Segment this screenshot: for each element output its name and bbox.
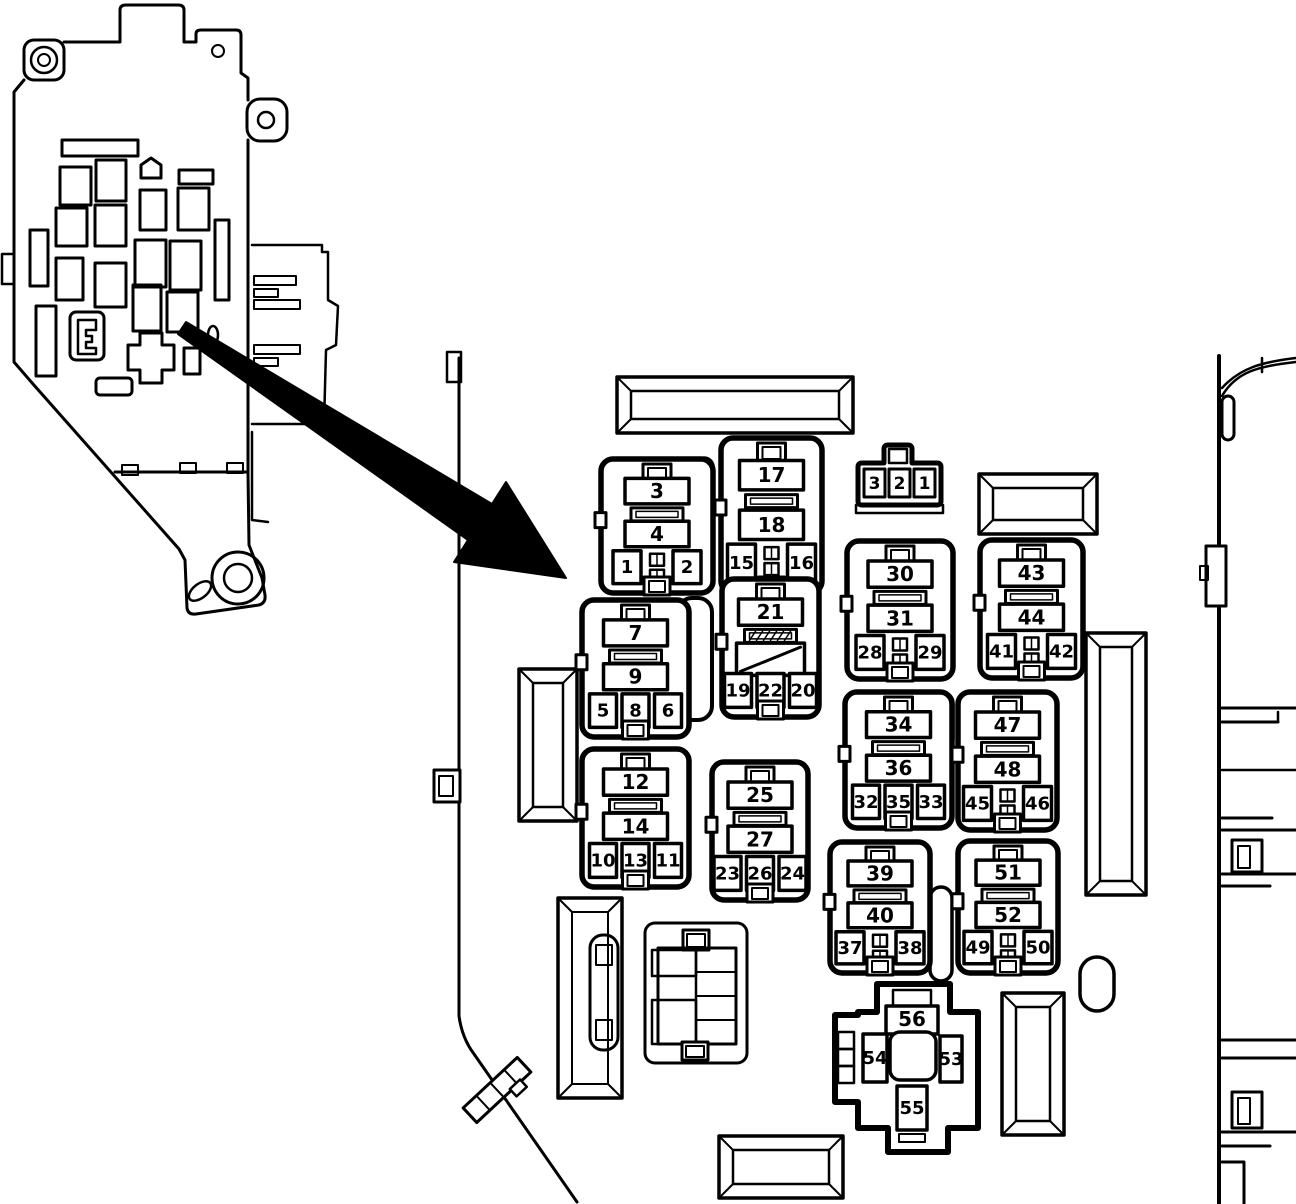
position-number: 9 <box>629 665 643 689</box>
side-notch <box>716 634 727 649</box>
position-number: 25 <box>746 783 774 807</box>
callout-arrow <box>178 322 566 578</box>
position-number: 29 <box>917 642 942 663</box>
relay-socket-block-34-36: 3436323533 <box>839 692 952 830</box>
side-notch <box>576 804 587 819</box>
bevel-slot <box>519 669 577 821</box>
relay-socket-block-12-14: 1214101311 <box>576 749 689 889</box>
position-number: 44 <box>1018 605 1046 629</box>
position-number: 52 <box>994 903 1022 927</box>
side-notch <box>595 513 606 528</box>
relay-socket-block-51-52: 51524950 <box>952 841 1058 975</box>
keyed-slot <box>463 1057 536 1128</box>
position-number: 46 <box>1025 793 1050 814</box>
position-number: 32 <box>853 792 878 813</box>
position-number: 19 <box>725 680 750 701</box>
position-number: 4 <box>650 522 664 546</box>
position-number: 37 <box>837 938 862 959</box>
position-number: 38 <box>897 938 922 959</box>
overview-fusebox-drawing <box>2 5 338 614</box>
position-number: 53 <box>938 1049 963 1070</box>
side-notch <box>974 595 985 610</box>
left-slot-connector <box>558 898 622 1098</box>
relay-socket-block-7-9: 79586 <box>576 600 689 739</box>
position-number: 8 <box>629 701 642 722</box>
overview-pentagon-slot <box>141 158 161 178</box>
position-number: 16 <box>789 553 814 574</box>
panel-right-edge <box>1200 356 1296 1204</box>
three-pin-connector: 321 <box>856 445 943 513</box>
fuse-element <box>982 889 1034 902</box>
position-number: 50 <box>1025 938 1050 959</box>
position-number: 2 <box>681 557 694 578</box>
position-number: 55 <box>899 1098 924 1119</box>
position-number: 18 <box>758 513 786 537</box>
position-number: 47 <box>994 713 1022 737</box>
position-number: 3 <box>869 474 881 494</box>
fuse-element <box>854 890 906 903</box>
side-notch <box>841 596 852 611</box>
fuse-element <box>610 650 662 663</box>
position-number: 33 <box>918 792 943 813</box>
position-number: 31 <box>886 606 914 630</box>
position-number: 7 <box>629 621 643 645</box>
position-number: 1 <box>919 474 931 494</box>
position-number: 54 <box>862 1048 887 1069</box>
position-number: 45 <box>965 793 990 814</box>
position-number: 41 <box>989 641 1014 662</box>
position-number: 42 <box>1049 641 1074 662</box>
position-number: 3 <box>650 479 664 503</box>
relay-socket-block-43-44: 43444142 <box>974 540 1083 680</box>
position-number: 39 <box>866 861 894 885</box>
bevel-slot <box>1086 633 1146 895</box>
side-notch <box>952 894 963 909</box>
position-number: 35 <box>886 792 911 813</box>
relay-socket-block-25-27: 2527232624 <box>706 762 808 902</box>
position-number: 30 <box>886 562 914 586</box>
position-number: 21 <box>757 600 785 624</box>
fuse-element <box>746 495 798 508</box>
position-number: 51 <box>994 861 1022 885</box>
side-notch <box>706 817 717 832</box>
relay-socket-block-39-40: 39403738 <box>824 842 930 975</box>
cross-relay-block: 56545355 <box>835 984 978 1152</box>
side-notch <box>952 747 963 762</box>
relay-socket-block-17-18: 17181516 <box>715 438 822 595</box>
mount-hole <box>212 552 264 604</box>
position-number: 5 <box>597 701 610 722</box>
side-notch <box>824 894 835 909</box>
position-number: 27 <box>746 827 774 851</box>
fuse-element <box>873 742 925 755</box>
position-number: 1 <box>621 557 634 578</box>
fuse-element <box>982 742 1034 755</box>
bevel-slot <box>979 474 1097 534</box>
relay-socket-block-3-4: 3412 <box>595 459 713 595</box>
position-number: 11 <box>655 850 680 871</box>
position-number: 13 <box>623 850 648 871</box>
fuse-element <box>1006 590 1058 603</box>
fuse-element <box>610 799 662 812</box>
position-number: 48 <box>994 757 1022 781</box>
bottom-connector-grid <box>645 923 747 1063</box>
position-number: 20 <box>790 680 815 701</box>
fuse-element <box>874 591 926 604</box>
position-number: 23 <box>715 863 740 884</box>
bevel-slot <box>1002 993 1064 1135</box>
relay-socket-block-47-48: 47484546 <box>952 692 1057 832</box>
panel-left-edge <box>434 352 577 1202</box>
side-notch <box>576 655 587 670</box>
position-number: 43 <box>1018 561 1046 585</box>
fuse-element <box>631 508 683 521</box>
bevel-slot <box>617 377 853 433</box>
diagram-page: 3412171815163031282943444142795862119222… <box>0 0 1296 1204</box>
oval-hole <box>1080 957 1114 1011</box>
relay-socket-block-21: 21192220 <box>716 579 819 719</box>
position-number: 10 <box>590 850 615 871</box>
position-number: 12 <box>622 770 650 794</box>
position-number: 26 <box>747 863 772 884</box>
position-number: 34 <box>885 713 913 737</box>
position-number: 6 <box>662 701 675 722</box>
position-number: 17 <box>758 463 786 487</box>
position-number: 24 <box>780 863 805 884</box>
side-notch <box>839 746 850 761</box>
position-number: 14 <box>622 814 650 838</box>
mount-ear <box>247 99 287 141</box>
overview-fuse-footprints <box>30 140 229 395</box>
position-number: 2 <box>894 474 906 494</box>
relay-socket-block-30-31: 30312829 <box>841 541 953 681</box>
position-number: 40 <box>866 903 894 927</box>
position-number: 56 <box>898 1007 926 1031</box>
position-number: 22 <box>758 680 783 701</box>
bevel-slot <box>719 1136 843 1198</box>
position-number: 15 <box>729 553 754 574</box>
position-number: 36 <box>885 756 913 780</box>
center-socket <box>890 1032 936 1080</box>
side-notch <box>715 500 726 515</box>
position-number: 49 <box>965 938 990 959</box>
overview-cross-slot <box>128 333 174 383</box>
fuse-element <box>734 812 786 825</box>
position-number: 28 <box>857 642 882 663</box>
